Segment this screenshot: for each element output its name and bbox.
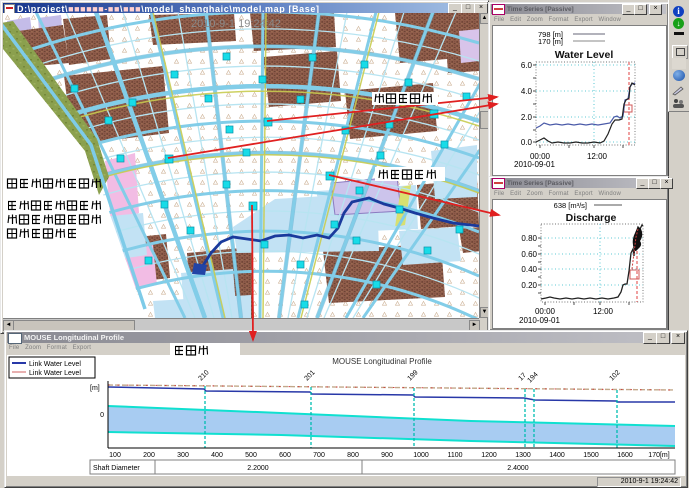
svg-text:400: 400 bbox=[211, 452, 223, 459]
svg-text:[m]: [m] bbox=[90, 385, 100, 392]
svg-text:4.0: 4.0 bbox=[521, 87, 533, 96]
svg-text:1600: 1600 bbox=[617, 452, 633, 459]
svg-text:0.80: 0.80 bbox=[521, 234, 537, 243]
svg-text:Link Water Level: Link Water Level bbox=[29, 361, 81, 368]
svg-text:0.60: 0.60 bbox=[521, 250, 537, 259]
svg-text:194: 194 bbox=[526, 371, 539, 384]
svg-text:Discharge: Discharge bbox=[566, 212, 617, 224]
svg-text:Link Water Level: Link Water Level bbox=[29, 370, 81, 377]
svg-text:1500: 1500 bbox=[583, 452, 599, 459]
svg-text:6.0: 6.0 bbox=[521, 61, 533, 70]
svg-text:170[m]: 170[m] bbox=[648, 452, 669, 459]
svg-text:100: 100 bbox=[109, 452, 121, 459]
svg-text:700: 700 bbox=[313, 452, 325, 459]
svg-text:00:00: 00:00 bbox=[535, 307, 556, 316]
svg-text:800: 800 bbox=[347, 452, 359, 459]
svg-text:Shaft Diameter: Shaft Diameter bbox=[93, 465, 140, 472]
svg-text:200: 200 bbox=[143, 452, 155, 459]
svg-text:12:00: 12:00 bbox=[587, 152, 608, 161]
svg-text:MOUSE Longitudinal Profile: MOUSE Longitudinal Profile bbox=[332, 357, 432, 366]
svg-text:300: 300 bbox=[177, 452, 189, 459]
svg-text:638 [m³/s]: 638 [m³/s] bbox=[554, 201, 587, 210]
svg-text:900: 900 bbox=[381, 452, 393, 459]
svg-text:199: 199 bbox=[406, 369, 419, 382]
svg-text:Water Level: Water Level bbox=[555, 49, 614, 61]
svg-text:2.0: 2.0 bbox=[521, 113, 533, 122]
svg-text:201: 201 bbox=[303, 369, 316, 382]
svg-text:0.40: 0.40 bbox=[521, 265, 537, 274]
svg-text:1100: 1100 bbox=[447, 452, 462, 459]
svg-text:102: 102 bbox=[608, 369, 621, 382]
svg-text:1300: 1300 bbox=[515, 452, 531, 459]
svg-text:500: 500 bbox=[245, 452, 257, 459]
svg-text:2010-09-01: 2010-09-01 bbox=[514, 160, 555, 169]
svg-text:0.0: 0.0 bbox=[521, 138, 533, 147]
svg-text:2010-9-1 19:24:42: 2010-9-1 19:24:42 bbox=[191, 18, 281, 30]
svg-text:12:00: 12:00 bbox=[593, 307, 614, 316]
svg-text:2010-09-01: 2010-09-01 bbox=[519, 316, 560, 325]
svg-text:2.4000: 2.4000 bbox=[507, 465, 529, 472]
svg-text:1400: 1400 bbox=[549, 452, 565, 459]
svg-text:0.20: 0.20 bbox=[521, 281, 537, 290]
svg-text:0: 0 bbox=[100, 412, 104, 419]
svg-text:17: 17 bbox=[517, 372, 528, 383]
svg-text:600: 600 bbox=[279, 452, 291, 459]
svg-text:170 [m]: 170 [m] bbox=[538, 37, 563, 46]
svg-text:210: 210 bbox=[197, 369, 210, 382]
svg-text:2.2000: 2.2000 bbox=[247, 465, 269, 472]
svg-text:1000: 1000 bbox=[413, 452, 429, 459]
svg-text:1200: 1200 bbox=[481, 452, 497, 459]
